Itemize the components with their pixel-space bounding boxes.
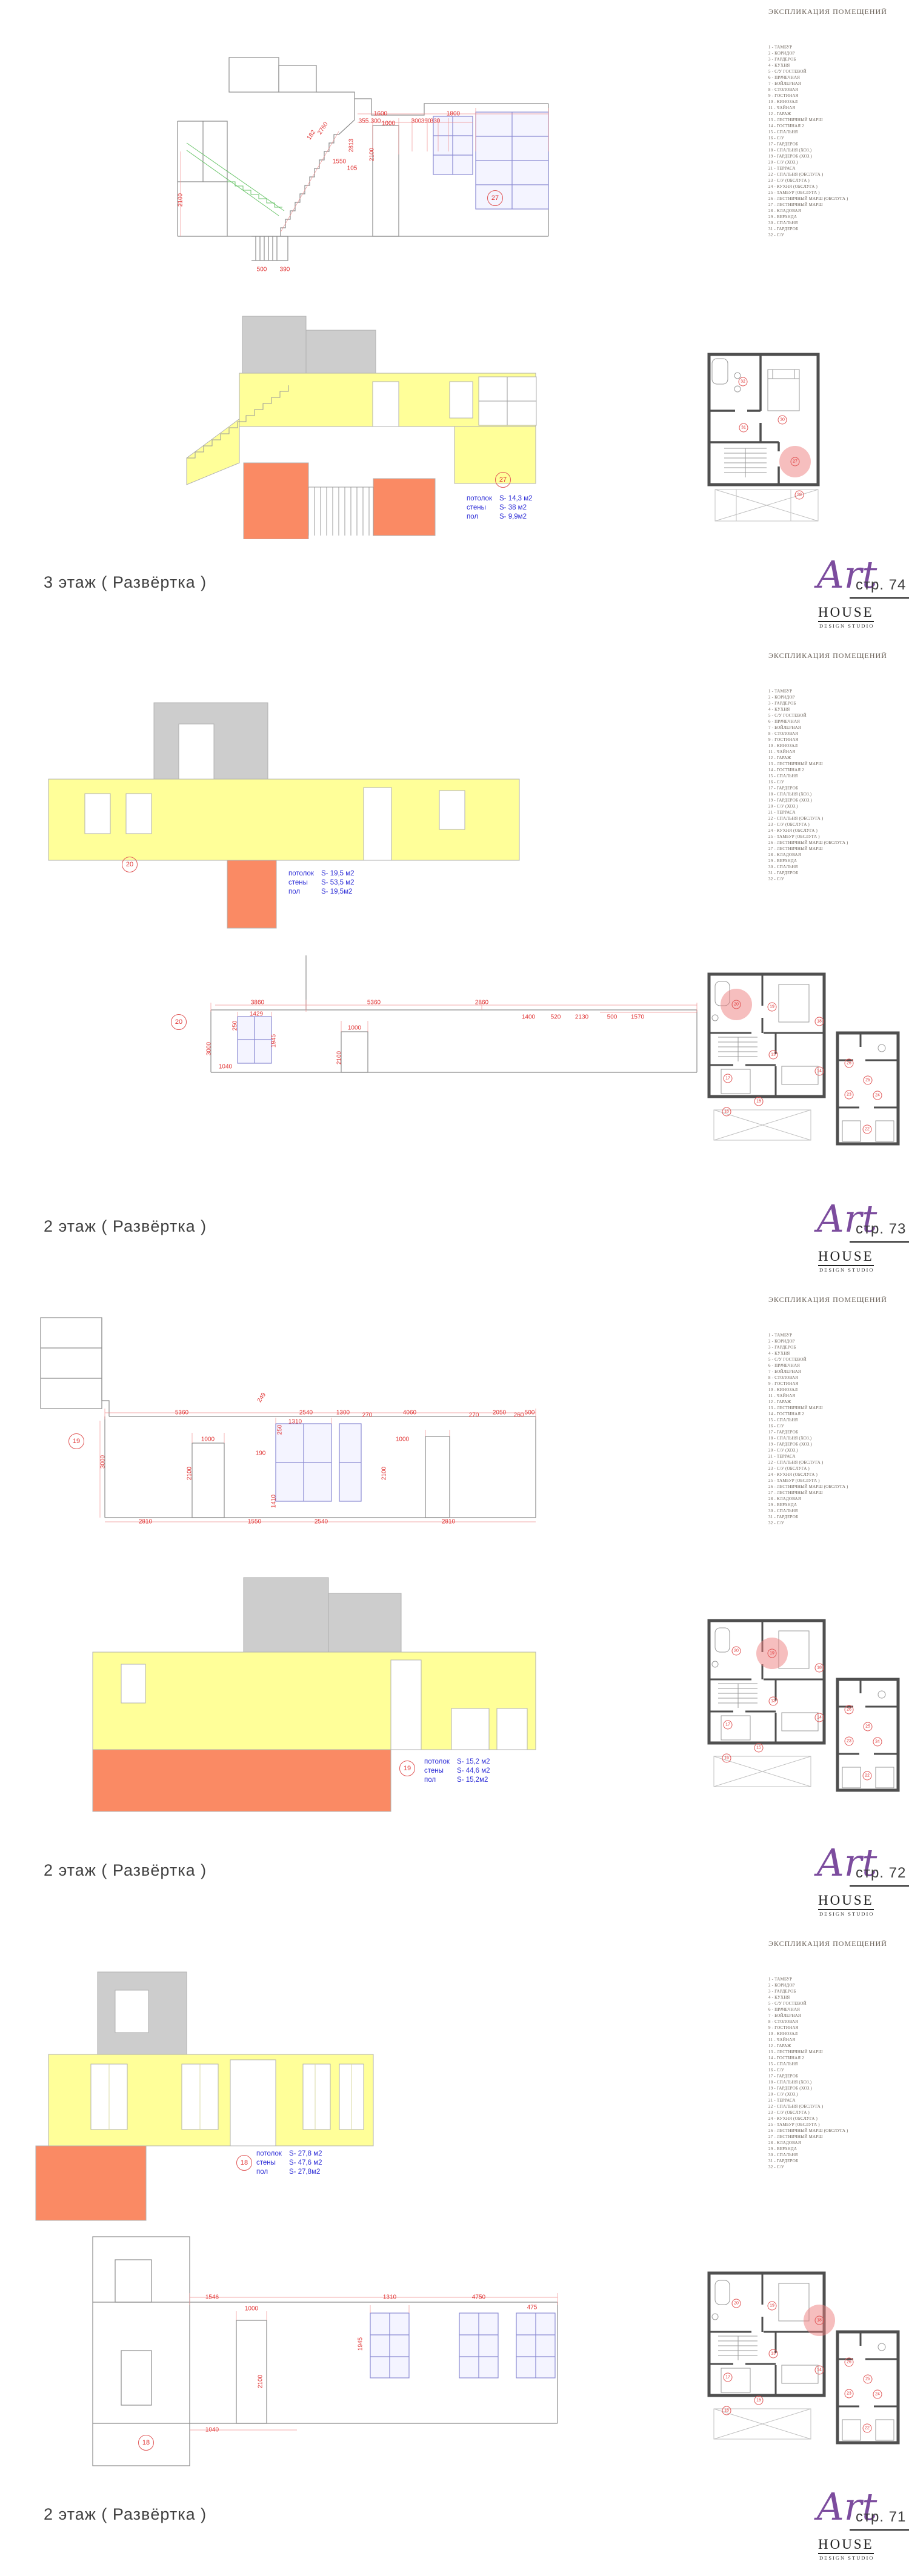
legend-item: 1 - ТАМБУР	[768, 688, 908, 694]
legend-item: 24 - КУХНЯ (ОБСЛУГА )	[768, 184, 908, 190]
legend-item: 24 - КУХНЯ (ОБСЛУГА )	[768, 1472, 908, 1478]
legend-item: 7 - БОЙЛЕРНАЯ	[768, 2013, 908, 2019]
legend-item: 4 - КУХНЯ	[768, 706, 908, 712]
legend-item: 19 - ГАРДЕРОБ (ХОЗ.)	[768, 153, 908, 159]
legend-title: ЭКСПЛИКАЦИЯ ПОМЕЩЕНИЙ	[768, 1939, 908, 1948]
legend-items: 1 - ТАМБУР2 - КОРИДОР3 - ГАРДЕРОБ4 - КУХ…	[768, 688, 908, 882]
legend-item: 19 - ГАРДЕРОБ (ХОЗ.)	[768, 2085, 908, 2091]
room-number-circle: 17	[724, 1721, 733, 1730]
legend-item: 11 - ЧАЙНАЯ	[768, 1393, 908, 1399]
logo-studio: DESIGN STUDIO	[819, 1911, 874, 1917]
room-number-circle: 22	[863, 2424, 872, 2433]
room-number-circle: 15	[754, 2396, 764, 2405]
room-number-circle: 23	[845, 1737, 854, 1746]
page-number: стр. 74	[856, 577, 906, 594]
legend-item: 25 - ТАМБУР (ОБСЛУГА )	[768, 1478, 908, 1484]
legend-item: 18 - СПАЛЬНЯ (ХОЗ.)	[768, 1435, 908, 1441]
logo-studio: DESIGN STUDIO	[819, 2555, 874, 2561]
legend-item: 15 - СПАЛЬНЯ	[768, 1417, 908, 1423]
legend-item: 28 - КЛАДОВАЯ	[768, 208, 908, 214]
legend-item: 10 - КИНОЗАЛ	[768, 1387, 908, 1393]
room-number-circle: 20	[732, 1647, 741, 1656]
room-number-circle: 17	[724, 1074, 733, 1083]
legend-item: 18 - СПАЛЬНЯ (ХОЗ.)	[768, 147, 908, 153]
legend-item: 2 - КОРИДОР	[768, 1982, 908, 1988]
legend-item: 1 - ТАМБУР	[768, 1332, 908, 1338]
legend-item: 29 - ВЕРАНДА	[768, 2146, 908, 2152]
room-number-circle: 30	[778, 416, 787, 425]
room-number-circle: 13	[769, 1697, 778, 1706]
legend-item: 27 - ЛЕСТНИЧНЫЙ МАРШ	[768, 846, 908, 852]
room-number-circle: 19	[768, 1003, 777, 1012]
room-legend: ЭКСПЛИКАЦИЯ ПОМЕЩЕНИЙ 1 - ТАМБУР2 - КОРИ…	[768, 7, 908, 238]
logo-rule	[850, 1241, 909, 1243]
legend-item: 14 - ГОСТИНАЯ 2	[768, 123, 908, 129]
room-number-circle: 28	[795, 491, 804, 500]
legend-item: 20 - С/У (ХОЗ.)	[768, 1447, 908, 1453]
legend-item: 11 - ЧАЙНАЯ	[768, 105, 908, 111]
room-number-circle: 19	[68, 1433, 84, 1449]
legend-item: 12 - ГАРАЖ	[768, 1399, 908, 1405]
sheet-title: 2 этаж ( Развёртка )	[44, 1861, 207, 1880]
sheet-title: 2 этаж ( Развёртка )	[44, 1217, 207, 1236]
legend-item: 12 - ГАРАЖ	[768, 2043, 908, 2049]
legend-item: 20 - С/У (ХОЗ.)	[768, 2091, 908, 2097]
legend-title: ЭКСПЛИКАЦИЯ ПОМЕЩЕНИЙ	[768, 1295, 908, 1304]
legend-item: 8 - СТОЛОВАЯ	[768, 2019, 908, 2025]
room-number-circle: 25	[864, 1722, 873, 1731]
room-number-circle: 27	[487, 190, 503, 206]
room-number-circle: 13	[769, 2349, 778, 2359]
legend-item: 5 - С/У ГОСТЕВОЙ	[768, 712, 908, 719]
room-number-circle: 25	[864, 1076, 873, 1085]
room-number-circle: 18	[138, 2435, 154, 2451]
room-number-circle: 20	[171, 1014, 187, 1030]
legend-item: 26 - ЛЕСТНИЧНЫЙ МАРШ (ОБСЛУГА )	[768, 1484, 908, 1490]
legend-item: 2 - КОРИДОР	[768, 50, 908, 56]
room-number-circle: 20	[732, 2299, 741, 2308]
legend-item: 6 - ПРАЧЕЧНАЯ	[768, 1363, 908, 1369]
legend-item: 16 - С/У	[768, 2067, 908, 2073]
legend-item: 32 - С/У	[768, 2164, 908, 2170]
legend-item: 11 - ЧАЙНАЯ	[768, 749, 908, 755]
studio-logo: Art стр. 73 HOUSE DESIGN STUDIO	[812, 1203, 909, 1281]
legend-item: 10 - КИНОЗАЛ	[768, 99, 908, 105]
room-number-circle: 24	[873, 2390, 882, 2399]
legend-item: 26 - ЛЕСТНИЧНЫЙ МАРШ (ОБСЛУГА )	[768, 840, 908, 846]
legend-item: 1 - ТАМБУР	[768, 44, 908, 50]
legend-item: 24 - КУХНЯ (ОБСЛУГА )	[768, 828, 908, 834]
legend-item: 10 - КИНОЗАЛ	[768, 743, 908, 749]
legend-item: 27 - ЛЕСТНИЧНЫЙ МАРШ	[768, 202, 908, 208]
legend-item: 3 - ГАРДЕРОБ	[768, 56, 908, 62]
room-number-circle: 20	[732, 1000, 741, 1009]
room-number-circle: 18	[236, 2155, 252, 2171]
legend-item: 23 - С/У (ОБСЛУГА )	[768, 178, 908, 184]
legend-title: ЭКСПЛИКАЦИЯ ПОМЕЩЕНИЙ	[768, 7, 908, 16]
legend-item: 6 - ПРАЧЕЧНАЯ	[768, 719, 908, 725]
room-number-circle: 19	[768, 1649, 777, 1658]
legend-item: 22 - СПАЛЬНЯ (ОБСЛУГА )	[768, 2103, 908, 2110]
logo-house: HOUSE	[818, 1249, 874, 1266]
legend-item: 2 - КОРИДОР	[768, 1338, 908, 1344]
legend-item: 12 - ГАРАЖ	[768, 755, 908, 761]
room-number-circle: 27	[791, 457, 800, 466]
legend-item: 16 - С/У	[768, 779, 908, 785]
room-number-circle: 22	[863, 1771, 872, 1781]
legend-item: 23 - С/У (ОБСЛУГА )	[768, 822, 908, 828]
room-number-circle: 16	[722, 2406, 731, 2415]
room-number-circle: 23	[845, 2389, 854, 2398]
legend-item: 7 - БОЙЛЕРНАЯ	[768, 1369, 908, 1375]
legend-item: 9 - ГОСТИНАЯ	[768, 93, 908, 99]
legend-item: 7 - БОЙЛЕРНАЯ	[768, 725, 908, 731]
room-number-circle: 13	[769, 1051, 778, 1060]
legend-item: 31 - ГАРДЕРОБ	[768, 1514, 908, 1520]
logo-studio: DESIGN STUDIO	[819, 1267, 874, 1273]
room-number-circle: 14	[815, 1067, 824, 1076]
room-legend: ЭКСПЛИКАЦИЯ ПОМЕЩЕНИЙ 1 - ТАМБУР2 - КОРИ…	[768, 651, 908, 882]
legend-item: 31 - ГАРДЕРОБ	[768, 226, 908, 232]
legend-item: 13 - ЛЕСТНИЧНЫЙ МАРШ	[768, 761, 908, 767]
legend-item: 4 - КУХНЯ	[768, 1994, 908, 2000]
legend-item: 7 - БОЙЛЕРНАЯ	[768, 81, 908, 87]
logo-house: HOUSE	[818, 605, 874, 622]
room-number-circle: 18	[815, 2316, 824, 2325]
room-number-circle: 16	[722, 1107, 731, 1117]
room-number-circle: 18	[815, 1664, 824, 1673]
room-number-circle: 14	[815, 2366, 824, 2375]
legend-item: 4 - КУХНЯ	[768, 1350, 908, 1356]
legend-item: 3 - ГАРДЕРОБ	[768, 700, 908, 706]
legend-item: 5 - С/У ГОСТЕВОЙ	[768, 2000, 908, 2007]
legend-item: 22 - СПАЛЬНЯ (ОБСЛУГА )	[768, 171, 908, 178]
legend-item: 31 - ГАРДЕРОБ	[768, 2158, 908, 2164]
logo-house: HOUSE	[818, 2537, 874, 2554]
legend-item: 27 - ЛЕСТНИЧНЫЙ МАРШ	[768, 1490, 908, 1496]
room-number-circle: 24	[873, 1738, 882, 1747]
legend-item: 28 - КЛАДОВАЯ	[768, 852, 908, 858]
logo-rule	[850, 597, 909, 599]
legend-item: 3 - ГАРДЕРОБ	[768, 1344, 908, 1350]
legend-item: 13 - ЛЕСТНИЧНЫЙ МАРШ	[768, 117, 908, 123]
legend-item: 9 - ГОСТИНАЯ	[768, 2025, 908, 2031]
legend-item: 9 - ГОСТИНАЯ	[768, 737, 908, 743]
legend-item: 8 - СТОЛОВАЯ	[768, 87, 908, 93]
studio-logo: Art стр. 74 HOUSE DESIGN STUDIO	[812, 559, 909, 637]
legend-item: 6 - ПРАЧЕЧНАЯ	[768, 75, 908, 81]
legend-item: 2 - КОРИДОР	[768, 694, 908, 700]
legend-item: 15 - СПАЛЬНЯ	[768, 2061, 908, 2067]
legend-title: ЭКСПЛИКАЦИЯ ПОМЕЩЕНИЙ	[768, 651, 908, 660]
legend-item: 1 - ТАМБУР	[768, 1976, 908, 1982]
room-number-circle: 32	[739, 377, 748, 387]
legend-item: 18 - СПАЛЬНЯ (ХОЗ.)	[768, 2079, 908, 2085]
legend-item: 14 - ГОСТИНАЯ 2	[768, 1411, 908, 1417]
sheet-page-74: потолокS- 14,3 м2 стеныS- 38 м2 полS- 9,…	[0, 0, 909, 644]
legend-item: 9 - ГОСТИНАЯ	[768, 1381, 908, 1387]
legend-item: 18 - СПАЛЬНЯ (ХОЗ.)	[768, 791, 908, 797]
room-number-circle: 26	[845, 2358, 854, 2367]
legend-item: 16 - С/У	[768, 135, 908, 141]
legend-item: 30 - СПАЛЬНЯ	[768, 1508, 908, 1514]
logo-studio: DESIGN STUDIO	[819, 623, 874, 629]
legend-item: 19 - ГАРДЕРОБ (ХОЗ.)	[768, 1441, 908, 1447]
sheet-title: 2 этаж ( Развёртка )	[44, 2505, 207, 2524]
legend-item: 32 - С/У	[768, 876, 908, 882]
room-number-circle: 26	[845, 1705, 854, 1715]
legend-item: 20 - С/У (ХОЗ.)	[768, 159, 908, 165]
legend-item: 17 - ГАРДЕРОБ	[768, 1429, 908, 1435]
logo-rule	[850, 2529, 909, 2531]
room-number-circle: 26	[845, 1059, 854, 1068]
legend-item: 3 - ГАРДЕРОБ	[768, 1988, 908, 1994]
room-number-circle: 20	[122, 857, 138, 872]
room-legend: ЭКСПЛИКАЦИЯ ПОМЕЩЕНИЙ 1 - ТАМБУР2 - КОРИ…	[768, 1295, 908, 1526]
legend-item: 17 - ГАРДЕРОБ	[768, 785, 908, 791]
legend-item: 21 - ТЕРРАСА	[768, 1453, 908, 1459]
room-number-circle: 14	[815, 1713, 824, 1722]
legend-item: 19 - ГАРДЕРОБ (ХОЗ.)	[768, 797, 908, 803]
room-number-circle: 27	[495, 472, 511, 488]
legend-item: 14 - ГОСТИНАЯ 2	[768, 767, 908, 773]
legend-item: 5 - С/У ГОСТЕВОЙ	[768, 68, 908, 75]
legend-item: 27 - ЛЕСТНИЧНЫЙ МАРШ	[768, 2134, 908, 2140]
room-number-circle: 15	[754, 1097, 764, 1106]
logo-rule	[850, 1885, 909, 1887]
legend-item: 14 - ГОСТИНАЯ 2	[768, 2055, 908, 2061]
legend-item: 21 - ТЕРРАСА	[768, 2097, 908, 2103]
legend-item: 30 - СПАЛЬНЯ	[768, 864, 908, 870]
legend-item: 30 - СПАЛЬНЯ	[768, 220, 908, 226]
legend-item: 17 - ГАРДЕРОБ	[768, 141, 908, 147]
legend-item: 26 - ЛЕСТНИЧНЫЙ МАРШ (ОБСЛУГА )	[768, 2128, 908, 2134]
logo-house: HOUSE	[818, 1893, 874, 1910]
sheet-page-72: потолокS- 15,2 м2 стеныS- 44,6 м2 полS- …	[0, 1288, 909, 1932]
room-legend: ЭКСПЛИКАЦИЯ ПОМЕЩЕНИЙ 1 - ТАМБУР2 - КОРИ…	[768, 1939, 908, 2170]
room-number-circle: 18	[815, 1017, 824, 1026]
legend-item: 25 - ТАМБУР (ОБСЛУГА )	[768, 2122, 908, 2128]
page-number: стр. 71	[856, 2509, 906, 2526]
legend-item: 4 - КУХНЯ	[768, 62, 908, 68]
legend-item: 23 - С/У (ОБСЛУГА )	[768, 1466, 908, 1472]
page-number: стр. 73	[856, 1221, 906, 1238]
room-number-circle: 19	[768, 2302, 777, 2311]
legend-item: 22 - СПАЛЬНЯ (ОБСЛУГА )	[768, 815, 908, 822]
room-number-circle: 25	[864, 2375, 873, 2384]
room-number-circle: 24	[873, 1091, 882, 1100]
legend-item: 25 - ТАМБУР (ОБСЛУГА )	[768, 190, 908, 196]
legend-item: 13 - ЛЕСТНИЧНЫЙ МАРШ	[768, 1405, 908, 1411]
page-number: стр. 72	[856, 1865, 906, 1882]
studio-logo: Art стр. 72 HOUSE DESIGN STUDIO	[812, 1847, 909, 1925]
legend-item: 28 - КЛАДОВАЯ	[768, 1496, 908, 1502]
legend-item: 22 - СПАЛЬНЯ (ОБСЛУГА )	[768, 1459, 908, 1466]
legend-item: 29 - ВЕРАНДА	[768, 214, 908, 220]
legend-item: 24 - КУХНЯ (ОБСЛУГА )	[768, 2116, 908, 2122]
legend-item: 21 - ТЕРРАСА	[768, 809, 908, 815]
legend-item: 5 - С/У ГОСТЕВОЙ	[768, 1356, 908, 1363]
room-number-circle: 16	[722, 1754, 731, 1763]
legend-item: 23 - С/У (ОБСЛУГА )	[768, 2110, 908, 2116]
legend-item: 13 - ЛЕСТНИЧНЫЙ МАРШ	[768, 2049, 908, 2055]
legend-item: 26 - ЛЕСТНИЧНЫЙ МАРШ (ОБСЛУГА )	[768, 196, 908, 202]
legend-item: 11 - ЧАЙНАЯ	[768, 2037, 908, 2043]
legend-items: 1 - ТАМБУР2 - КОРИДОР3 - ГАРДЕРОБ4 - КУХ…	[768, 44, 908, 238]
legend-item: 21 - ТЕРРАСА	[768, 165, 908, 171]
room-number-circle: 19	[399, 1761, 415, 1776]
studio-logo: Art стр. 71 HOUSE DESIGN STUDIO	[812, 2491, 909, 2569]
legend-item: 15 - СПАЛЬНЯ	[768, 773, 908, 779]
legend-item: 15 - СПАЛЬНЯ	[768, 129, 908, 135]
legend-item: 28 - КЛАДОВАЯ	[768, 2140, 908, 2146]
room-number-circle: 22	[863, 1125, 872, 1134]
legend-items: 1 - ТАМБУР2 - КОРИДОР3 - ГАРДЕРОБ4 - КУХ…	[768, 1332, 908, 1526]
sheet-title: 3 этаж ( Развёртка )	[44, 573, 207, 592]
sheet-page-71: потолокS- 27,8 м2 стеныS- 47,6 м2 полS- …	[0, 1932, 909, 2576]
room-number-circle: 23	[845, 1090, 854, 1100]
legend-item: 29 - ВЕРАНДА	[768, 858, 908, 864]
legend-item: 10 - КИНОЗАЛ	[768, 2031, 908, 2037]
room-number-circle: 17	[724, 2373, 733, 2382]
legend-items: 1 - ТАМБУР2 - КОРИДОР3 - ГАРДЕРОБ4 - КУХ…	[768, 1976, 908, 2170]
legend-item: 25 - ТАМБУР (ОБСЛУГА )	[768, 834, 908, 840]
sheet-page-73: потолокS- 19,5 м2 стеныS- 53,5 м2 полS- …	[0, 644, 909, 1288]
legend-item: 17 - ГАРДЕРОБ	[768, 2073, 908, 2079]
legend-item: 30 - СПАЛЬНЯ	[768, 2152, 908, 2158]
room-number-circle: 31	[739, 423, 748, 433]
legend-item: 16 - С/У	[768, 1423, 908, 1429]
legend-item: 32 - С/У	[768, 232, 908, 238]
legend-item: 32 - С/У	[768, 1520, 908, 1526]
legend-item: 31 - ГАРДЕРОБ	[768, 870, 908, 876]
legend-item: 8 - СТОЛОВАЯ	[768, 1375, 908, 1381]
legend-item: 29 - ВЕРАНДА	[768, 1502, 908, 1508]
legend-item: 6 - ПРАЧЕЧНАЯ	[768, 2007, 908, 2013]
legend-item: 8 - СТОЛОВАЯ	[768, 731, 908, 737]
legend-item: 12 - ГАРАЖ	[768, 111, 908, 117]
legend-item: 20 - С/У (ХОЗ.)	[768, 803, 908, 809]
room-number-circle: 15	[754, 1744, 764, 1753]
